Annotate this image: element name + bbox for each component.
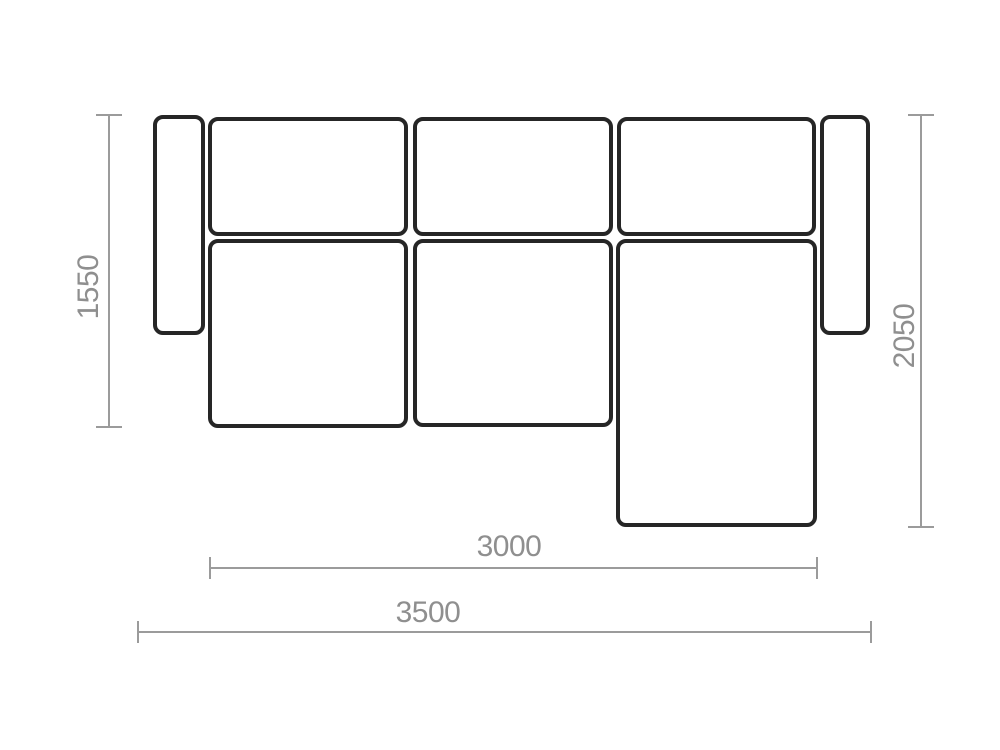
dimension-cap-left-bottom [96,426,122,428]
chaise-lounge [616,239,817,527]
sofa-floor-plan-diagram: 1550 2050 3000 3500 [0,0,1000,750]
seat-cushion-1 [208,239,408,428]
dimension-label-3000: 3000 [477,532,542,562]
dimension-cap-3000-left [209,557,211,579]
right-armrest [820,115,870,335]
dimension-cap-right-bottom [908,526,934,528]
dimension-label-1550: 1550 [74,255,104,320]
left-armrest [153,115,205,335]
dimension-cap-3500-left [137,621,139,643]
dimension-cap-left-top [96,114,122,116]
dimension-line-3000 [210,567,817,569]
dimension-cap-3500-right [870,621,872,643]
dimension-cap-right-top [908,114,934,116]
back-cushion-1 [208,117,408,236]
back-cushion-3 [617,117,816,236]
dimension-line-3500 [138,631,871,633]
dimension-cap-3000-right [816,557,818,579]
dimension-line-left [108,115,110,427]
dimension-label-3500: 3500 [396,598,461,628]
seat-cushion-2 [413,239,613,427]
dimension-label-2050: 2050 [890,304,920,369]
back-cushion-2 [413,117,613,236]
